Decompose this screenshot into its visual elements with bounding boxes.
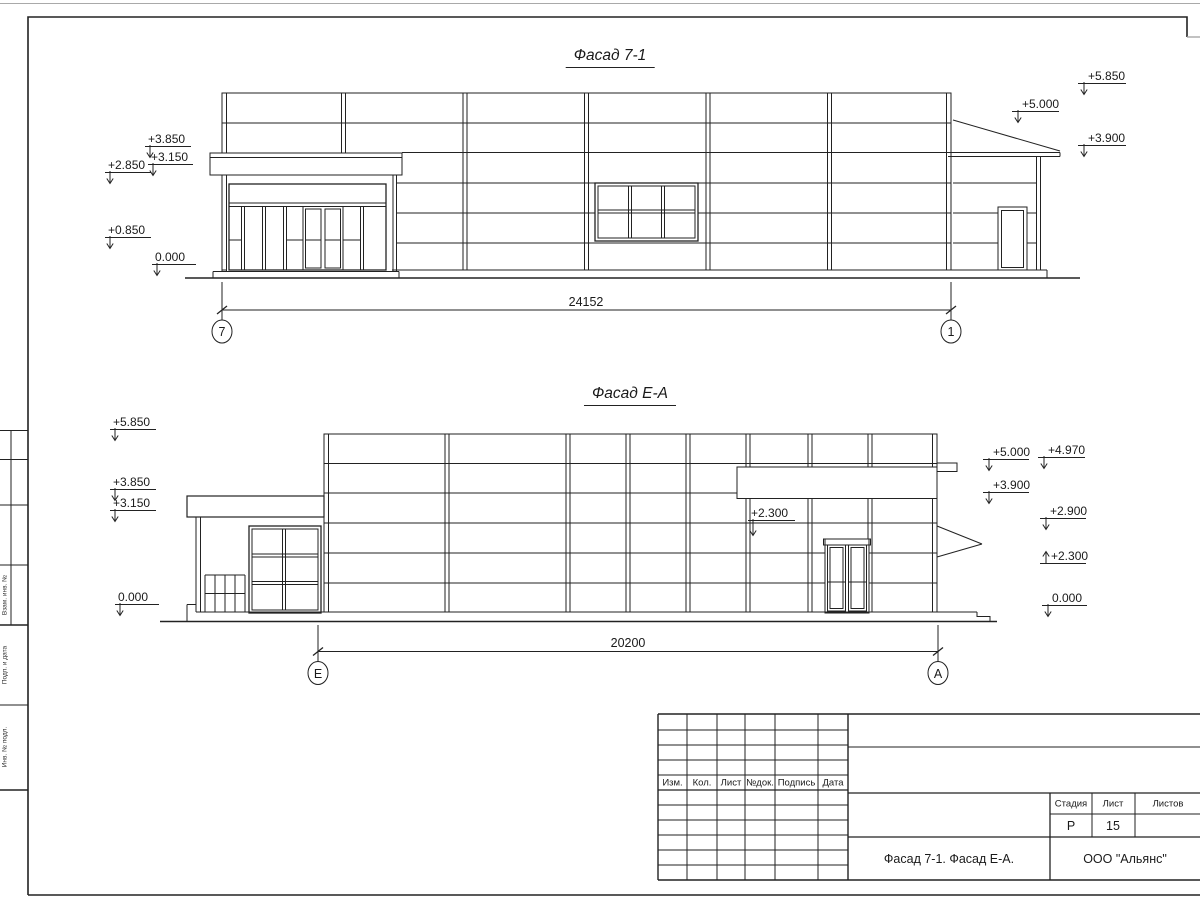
elevation-mark: +2.300 [748, 505, 795, 521]
tb-header-data: Дата [822, 778, 843, 789]
tb-drawing-title: Фасад 7-1. Фасад Е-А. [884, 852, 1014, 866]
elevation-mark: +2.300 [1040, 548, 1086, 564]
facade1-title: Фасад 7-1 [566, 47, 655, 68]
axis-bubble-7: 7 [219, 325, 226, 339]
strip-label: Взам. инв. № [2, 575, 9, 615]
elevation-mark: +4.970 [1038, 442, 1085, 458]
tb-sheets-label: Листов [1153, 799, 1184, 810]
elevation-mark: +5.000 [1012, 96, 1059, 112]
elevation-mark: +0.850 [105, 222, 151, 238]
facade2-title: Фасад Е-А [584, 385, 676, 406]
elevation-mark: +5.850 [1078, 68, 1126, 84]
strip-label: Инв. № подл. [2, 727, 9, 768]
facade2-dimension [308, 625, 948, 685]
elevation-mark: +5.850 [110, 414, 156, 430]
tb-header-ndok: №док. [746, 778, 774, 789]
elevation-mark: +3.150 [110, 495, 156, 511]
elevation-mark: +3.150 [148, 149, 193, 165]
facade2-dimension-value: 20200 [611, 636, 646, 650]
tb-header-list: Лист [721, 778, 742, 789]
tb-header-podpis: Подпись [778, 778, 816, 789]
elevation-mark: +3.850 [145, 131, 191, 147]
axis-bubble-1: 1 [948, 325, 955, 339]
tb-stage-label: Стадия [1055, 799, 1087, 810]
elevation-mark: +3.900 [1078, 130, 1126, 146]
strip-label: Подп. и дата [2, 646, 9, 684]
drawing-sheet: Фасад 7-1 Фасад Е-А 24152 20200 7 1 Е А … [0, 0, 1200, 900]
facade1-drawing [185, 93, 1080, 343]
elevation-mark: +2.850 [105, 157, 151, 173]
elevation-mark: +3.850 [110, 474, 156, 490]
axis-bubble-e: Е [314, 667, 322, 681]
tb-sheet-value: 15 [1106, 819, 1120, 833]
elevation-mark: 0.000 [152, 249, 196, 265]
tb-company: ООО "Альянс" [1083, 852, 1167, 866]
facade1-dimension [212, 282, 961, 343]
elevation-mark: +2.900 [1040, 503, 1086, 519]
tb-header-izm: Изм. [662, 778, 682, 789]
elevation-mark: 0.000 [115, 589, 159, 605]
axis-bubble-a: А [934, 667, 942, 681]
facade2-drawing [160, 434, 997, 685]
elevation-mark: +3.900 [983, 477, 1029, 493]
tb-stage-value: Р [1067, 819, 1075, 833]
tb-header-kol: Кол. [693, 778, 712, 789]
elevation-mark: +5.000 [983, 444, 1029, 460]
tb-sheet-label: Лист [1103, 799, 1124, 810]
facade1-dimension-value: 24152 [569, 295, 604, 309]
elevation-mark: 0.000 [1042, 590, 1087, 606]
